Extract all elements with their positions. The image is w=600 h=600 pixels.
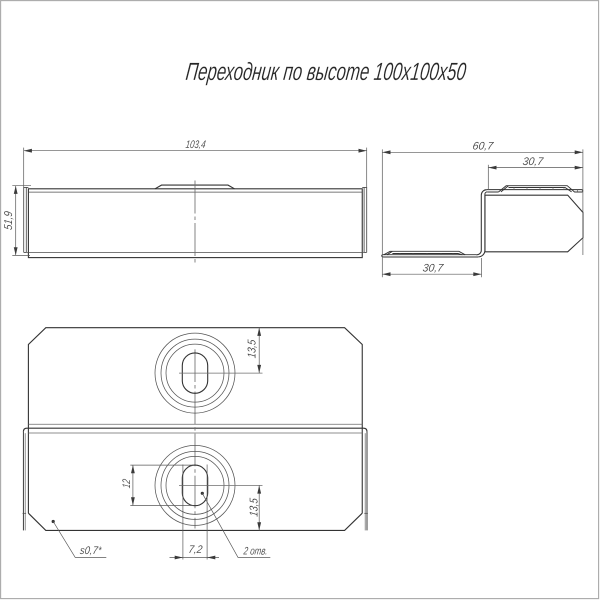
svg-text:30,7: 30,7 <box>522 156 545 168</box>
svg-text:103,4: 103,4 <box>185 139 206 151</box>
svg-text:13,5: 13,5 <box>249 497 261 517</box>
svg-text:60,7: 60,7 <box>472 141 495 153</box>
svg-text:30,7: 30,7 <box>422 262 445 274</box>
svg-text:Переходник по высоте 100х100х5: Переходник по высоте 100х100х50 <box>184 58 467 86</box>
svg-text:12: 12 <box>121 478 133 488</box>
svg-text:51,9: 51,9 <box>3 210 15 230</box>
svg-text:2 отв.: 2 отв. <box>242 546 268 558</box>
svg-text:7,2: 7,2 <box>188 544 203 556</box>
svg-text:s0,7*: s0,7* <box>79 545 103 557</box>
svg-text:13,5: 13,5 <box>246 338 258 358</box>
